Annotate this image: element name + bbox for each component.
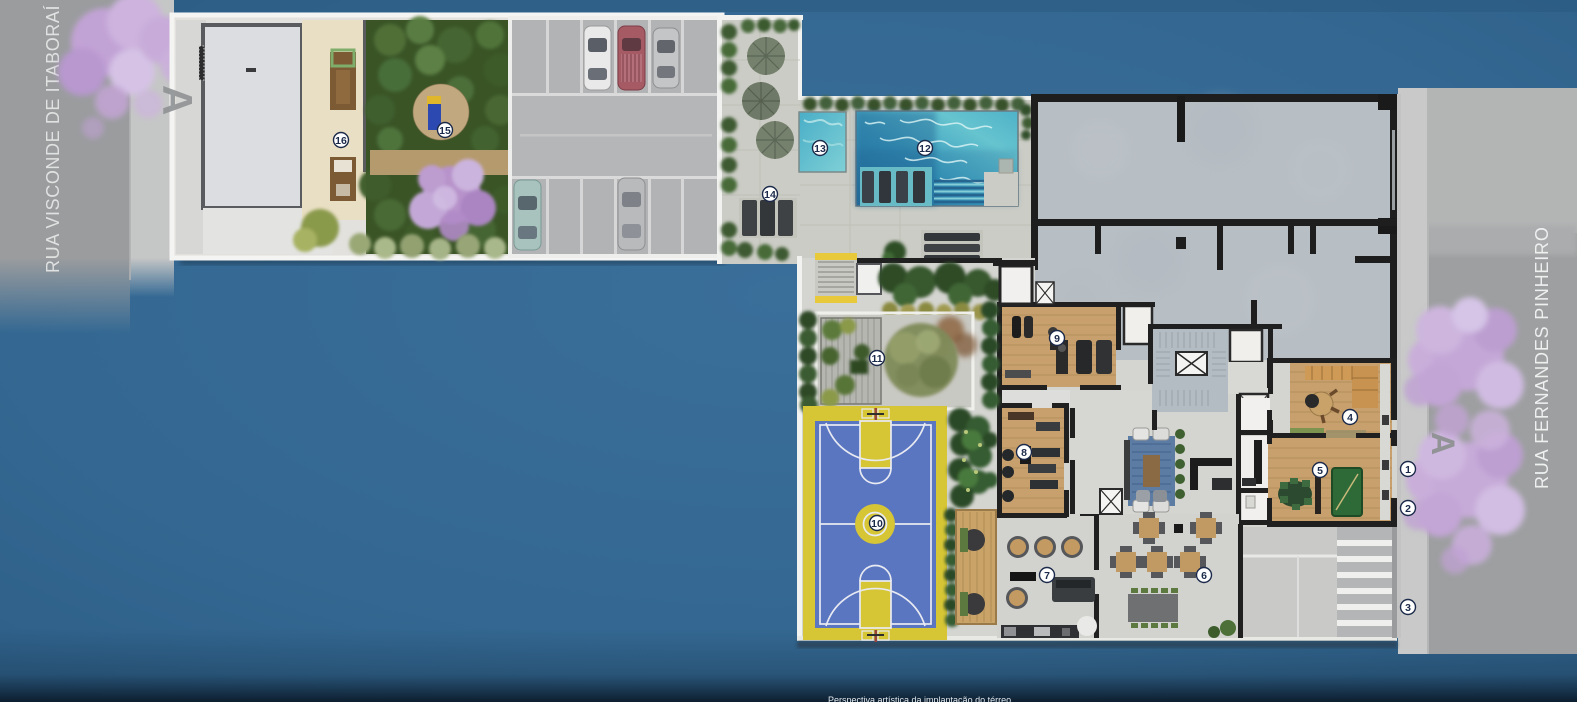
svg-text:RUA VISCONDE DE ITABORAÍ: RUA VISCONDE DE ITABORAÍ: [43, 5, 63, 273]
svg-text:15: 15: [439, 125, 451, 137]
svg-text:11: 11: [871, 353, 882, 365]
svg-text:3: 3: [1405, 602, 1411, 614]
svg-text:12: 12: [919, 143, 931, 155]
svg-text:8: 8: [1021, 447, 1027, 459]
svg-text:9: 9: [1054, 333, 1060, 345]
svg-text:5: 5: [1317, 465, 1323, 477]
svg-text:RUA FERNANDES PINHEIRO: RUA FERNANDES PINHEIRO: [1532, 226, 1552, 489]
svg-text:10: 10: [871, 518, 883, 530]
svg-text:Perspectiva artística da impla: Perspectiva artística da implantação do …: [828, 695, 1011, 702]
svg-text:7: 7: [1044, 570, 1050, 582]
svg-text:16: 16: [335, 135, 347, 147]
svg-text:14: 14: [764, 189, 776, 201]
svg-text:2: 2: [1405, 503, 1411, 515]
svg-text:4: 4: [1347, 412, 1353, 424]
svg-text:6: 6: [1201, 570, 1207, 582]
svg-text:A: A: [1425, 432, 1461, 455]
svg-text:A: A: [154, 85, 201, 115]
svg-text:1: 1: [1405, 464, 1411, 476]
svg-text:13: 13: [814, 143, 826, 155]
